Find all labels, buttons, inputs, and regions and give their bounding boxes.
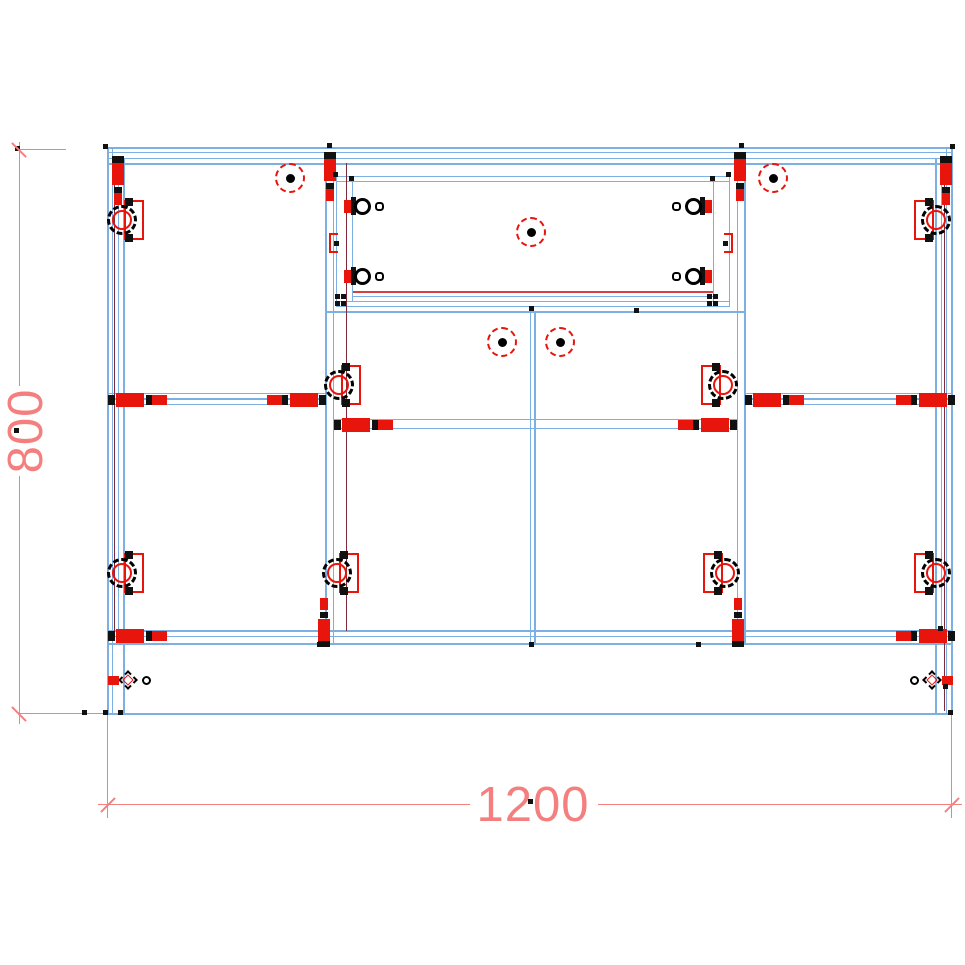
grip-dot — [696, 642, 701, 647]
leg-hole-icon — [910, 676, 919, 685]
height-dimension-label: 800 — [1, 366, 51, 496]
cam-fitting-icon — [326, 189, 334, 201]
cam-fitting-icon — [911, 395, 917, 405]
width-dimension-label: 1200 — [433, 779, 633, 831]
cad-line — [108, 163, 953, 165]
cad-line — [19, 476, 20, 724]
cam-fitting-icon — [948, 631, 955, 641]
cad-line — [108, 152, 953, 153]
cam-fitting-icon — [732, 619, 744, 641]
drawer-slide-ring — [685, 198, 702, 215]
hinge-screw-icon — [125, 198, 133, 206]
cam-fitting-icon — [948, 395, 955, 405]
cam-fitting-icon — [919, 629, 947, 643]
grip-dot — [529, 306, 534, 311]
grip-dot — [713, 301, 718, 306]
grip-dot — [103, 144, 108, 149]
hinge-screw-icon — [925, 234, 933, 242]
grip-dot — [634, 308, 639, 313]
hinge-cup-ring — [926, 210, 946, 230]
grip-dot — [317, 642, 322, 647]
grip-dot — [943, 684, 948, 689]
cad-line — [108, 713, 953, 715]
grip-dot — [938, 626, 943, 631]
grip-dot — [349, 176, 354, 181]
cam-fitting-icon — [753, 393, 781, 407]
hinge-cup-ring — [327, 563, 347, 583]
knob-center — [498, 338, 507, 347]
cam-fitting-icon — [378, 420, 393, 430]
knob-center — [769, 174, 778, 183]
cam-fitting-icon — [108, 395, 115, 405]
cad-line — [98, 804, 470, 805]
cad-line — [19, 142, 20, 386]
grip-dot — [528, 799, 533, 804]
cad-line — [19, 713, 109, 714]
grip-dot — [707, 301, 712, 306]
grip-dot — [707, 294, 712, 299]
cad-line — [951, 147, 953, 715]
cam-fitting-icon — [736, 189, 744, 201]
cam-fitting-icon — [342, 418, 370, 432]
cam-fitting-icon — [318, 619, 330, 641]
cam-fitting-icon — [701, 418, 729, 432]
cad-line — [352, 291, 714, 293]
grip-dot — [739, 143, 744, 148]
cam-fitting-icon — [734, 159, 746, 181]
cad-line — [108, 158, 953, 159]
cabinet-drawing: 800 1200 — [0, 0, 965, 965]
cam-fitting-icon — [319, 395, 326, 405]
grip-dot — [335, 301, 340, 306]
drawer-slide-dot — [672, 272, 681, 281]
dimension-tick — [100, 797, 116, 813]
hinge-screw-icon — [925, 587, 933, 595]
hinge-screw-icon — [925, 198, 933, 206]
dimension-tick — [944, 797, 960, 813]
drawer-slide-ring — [685, 268, 702, 285]
cam-fitting-icon — [734, 612, 742, 618]
hinge-screw-icon — [342, 363, 350, 371]
hinge-screw-icon — [712, 399, 720, 407]
cam-fitting-icon — [919, 393, 947, 407]
cam-fitting-icon — [324, 152, 336, 159]
cad-line — [713, 181, 714, 301]
drawer-slide-icon — [704, 200, 712, 213]
cam-fitting-icon — [112, 156, 124, 163]
drawer-slide-dot — [375, 272, 384, 281]
grip-dot — [710, 176, 715, 181]
cam-fitting-icon — [896, 395, 911, 405]
drawer-slide-icon — [704, 270, 712, 283]
rail-bracket-pin — [723, 241, 728, 246]
cam-fitting-icon — [290, 393, 318, 407]
hinge-screw-icon — [714, 587, 722, 595]
knob-center — [286, 174, 295, 183]
cam-fitting-icon — [730, 420, 737, 430]
grip-dot — [726, 172, 731, 177]
hinge-screw-icon — [125, 587, 133, 595]
cam-fitting-icon — [940, 156, 952, 163]
cam-fitting-icon — [116, 629, 144, 643]
cad-line — [530, 311, 531, 645]
cam-fitting-icon — [734, 598, 742, 610]
hinge-cup-ring — [112, 563, 132, 583]
cam-fitting-icon — [114, 193, 122, 205]
cam-fitting-icon — [320, 598, 328, 610]
grip-dot — [82, 710, 87, 715]
rail-bracket-pin — [334, 241, 339, 246]
drawer-slide-dot — [375, 202, 384, 211]
cad-line — [107, 147, 109, 715]
grip-dot — [950, 144, 955, 149]
cam-fitting-icon — [116, 393, 144, 407]
hinge-cup-ring — [926, 563, 946, 583]
hinge-screw-icon — [125, 234, 133, 242]
grip-dot — [948, 710, 953, 715]
cad-line — [336, 301, 730, 302]
cam-fitting-icon — [745, 395, 752, 405]
cam-fitting-icon — [152, 631, 167, 641]
grip-dot — [341, 301, 346, 306]
cam-fitting-icon — [112, 163, 124, 185]
cam-fitting-icon — [896, 631, 911, 641]
cam-fitting-icon — [789, 395, 804, 405]
cam-fitting-icon — [940, 163, 952, 185]
grip-dot — [335, 294, 340, 299]
cad-line — [336, 181, 730, 182]
cam-fitting-icon — [911, 631, 917, 641]
grip-dot — [103, 710, 108, 715]
cad-line — [108, 147, 953, 149]
cam-fitting-icon — [693, 420, 699, 430]
hinge-screw-icon — [925, 551, 933, 559]
hinge-screw-icon — [714, 551, 722, 559]
cam-fitting-icon — [734, 152, 746, 159]
leg-hole-icon — [142, 676, 151, 685]
cam-fitting-icon — [152, 395, 167, 405]
drawer-slide-dot — [672, 202, 681, 211]
grip-dot — [341, 294, 346, 299]
cam-fitting-icon — [334, 420, 341, 430]
cam-fitting-icon — [732, 641, 744, 647]
hinge-cup-ring — [329, 375, 349, 395]
cam-fitting-icon — [942, 193, 950, 205]
cam-fitting-icon — [282, 395, 288, 405]
leg-stub — [108, 676, 119, 685]
knob-center — [527, 228, 536, 237]
hinge-screw-icon — [340, 551, 348, 559]
cam-fitting-icon — [267, 395, 282, 405]
hinge-screw-icon — [342, 399, 350, 407]
cam-fitting-icon — [320, 612, 328, 618]
cad-line — [19, 149, 66, 150]
hinge-cup-ring — [715, 563, 735, 583]
hinge-cup-ring — [112, 210, 132, 230]
drawer-slide-ring — [354, 198, 371, 215]
grip-dot — [327, 143, 332, 148]
hinge-screw-icon — [125, 551, 133, 559]
hinge-cup-ring — [713, 375, 733, 395]
knob-center — [556, 338, 565, 347]
grip-dot — [118, 710, 123, 715]
cad-line — [534, 311, 536, 645]
grip-dot — [14, 428, 19, 433]
grip-dot — [333, 172, 338, 177]
cam-fitting-icon — [678, 420, 693, 430]
cam-fitting-icon — [324, 159, 336, 181]
cad-line — [336, 176, 730, 177]
cad-line — [598, 804, 962, 805]
grip-dot — [529, 642, 534, 647]
hinge-screw-icon — [340, 587, 348, 595]
drawer-slide-ring — [354, 268, 371, 285]
cam-fitting-icon — [108, 631, 115, 641]
grip-dot — [713, 294, 718, 299]
cad-viewport: 800 1200 — [0, 0, 965, 965]
cad-line — [352, 296, 714, 297]
hinge-screw-icon — [712, 363, 720, 371]
